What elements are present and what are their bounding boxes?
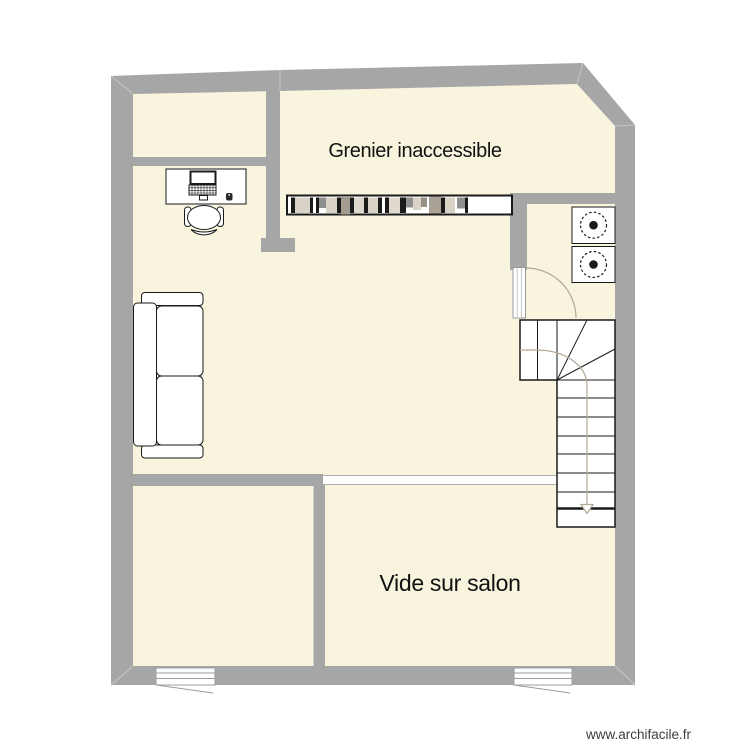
- sofa[interactable]: [134, 293, 204, 459]
- book: [350, 198, 354, 214]
- window-left[interactable]: [156, 668, 215, 693]
- wall-vertical-grenier-foot[interactable]: [261, 238, 295, 252]
- book: [421, 198, 427, 208]
- desk[interactable]: [166, 169, 246, 204]
- book: [316, 198, 319, 214]
- book: [429, 197, 441, 214]
- archifacile-watermark: www.archifacile.fr: [585, 727, 692, 742]
- book: [337, 198, 341, 214]
- hotplate-bottom[interactable]: [572, 247, 615, 283]
- book: [368, 198, 378, 214]
- book: [465, 198, 468, 214]
- window-right[interactable]: [514, 668, 572, 693]
- mouse-icon: [226, 193, 233, 201]
- book: [378, 198, 382, 214]
- floor-plan-canvas: Grenier inaccessible Vide sur salon www.…: [0, 0, 750, 750]
- book: [341, 196, 350, 215]
- book: [389, 198, 400, 214]
- book: [403, 198, 406, 214]
- hotplate-top[interactable]: [572, 207, 615, 244]
- floor-plan-svg: Grenier inaccessible Vide sur salon www.…: [0, 0, 750, 750]
- book: [291, 198, 295, 214]
- room-label-grenier[interactable]: Grenier inaccessible: [328, 140, 501, 162]
- book: [326, 198, 337, 214]
- open-bay[interactable]: [323, 475, 557, 485]
- book: [385, 198, 389, 214]
- wall-between-bottom-rooms[interactable]: [314, 484, 326, 667]
- book: [295, 198, 310, 214]
- room-label-vide-sur-salon[interactable]: Vide sur salon: [379, 570, 520, 596]
- book: [457, 198, 465, 209]
- book: [441, 198, 445, 214]
- book: [364, 198, 368, 214]
- book: [400, 198, 403, 214]
- wall-top-left-room[interactable]: [133, 157, 270, 166]
- book: [354, 198, 364, 214]
- bookshelf[interactable]: [287, 196, 512, 215]
- wall-bottom-rooms[interactable]: [133, 474, 323, 486]
- book: [406, 198, 413, 208]
- bookshelf-books: [291, 196, 468, 215]
- book: [319, 198, 326, 209]
- book: [413, 198, 421, 211]
- book: [445, 198, 455, 214]
- book: [310, 198, 313, 214]
